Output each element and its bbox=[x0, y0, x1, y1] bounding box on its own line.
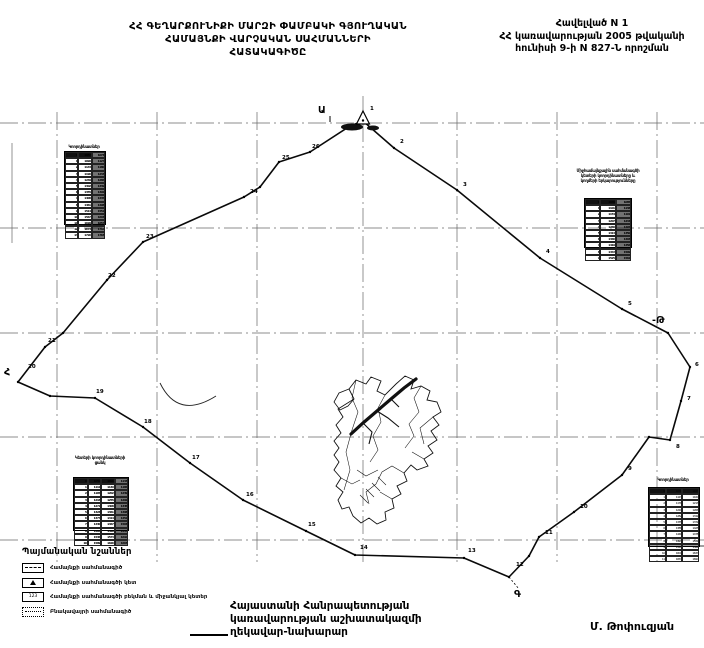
boundary-point bbox=[94, 397, 96, 399]
coordinate-table-upper-left: 0103710741109011272114311803119612334124… bbox=[64, 151, 106, 225]
table-cell: 1653 bbox=[666, 556, 683, 562]
table-row: 10158916261663 bbox=[74, 540, 128, 546]
vertex-number: 3 bbox=[463, 182, 467, 188]
boundary-line-icon bbox=[22, 563, 44, 573]
annex-line3: հունիսի 9-ի N 827-Ն որոշման bbox=[484, 43, 700, 56]
coordinate-table-lower-right: 0107011071112311602117612133122912664128… bbox=[648, 487, 700, 547]
table-cell: 10 bbox=[74, 540, 88, 546]
adjacent-community-letter: Հ bbox=[4, 367, 10, 378]
vertex-number: 23 bbox=[146, 234, 154, 240]
boundary-point bbox=[44, 346, 46, 348]
vertex-number: 8 bbox=[676, 444, 680, 450]
vertex-number: 20 bbox=[28, 364, 36, 370]
boundary-point bbox=[259, 186, 261, 188]
boundary-point bbox=[528, 555, 530, 557]
boundary-point bbox=[573, 511, 575, 513]
vertex-number: 12 bbox=[516, 562, 524, 568]
boundary-point bbox=[142, 241, 144, 243]
boundary-point bbox=[621, 308, 623, 310]
table-cell: 1763 bbox=[92, 232, 105, 238]
triangulation-point-icon bbox=[330, 111, 379, 131]
boundary-point bbox=[680, 400, 682, 402]
vertex-number: 11 bbox=[545, 530, 553, 536]
boundary-point bbox=[648, 436, 650, 438]
boundary-point bbox=[463, 557, 465, 559]
issuing-authority: Հայաստանի Հանրապետության կառավարության ա… bbox=[230, 600, 422, 638]
legend-item-boundary-line: Համայնքի սահմանագիծ bbox=[22, 563, 222, 573]
vertex-number: 7 bbox=[687, 396, 691, 402]
map-title-line2: ՀԱՄԱՅՆՔԻ ՎԱՐՉԱԿԱՆ ՍԱՀՄԱՆՆԵՐԻ bbox=[118, 33, 418, 46]
vertex-number: 18 bbox=[144, 419, 152, 425]
vertex-number: 19 bbox=[96, 389, 104, 395]
boundary-point bbox=[278, 161, 280, 163]
authority-line1: Հայաստանի Հանրապետության bbox=[230, 600, 422, 613]
vertex-number: 22 bbox=[108, 273, 116, 279]
table-cell: 1589 bbox=[88, 540, 102, 546]
boundary-point bbox=[17, 381, 19, 383]
vertex-number: 9 bbox=[628, 466, 632, 472]
table-caption-lower-right: Կոորդինատներ bbox=[646, 477, 700, 482]
boundary-point bbox=[393, 147, 395, 149]
map-title: ՀՀ ԳԵՂԱՐՔՈՒՆԻՔԻ ՄԱՐԶԻ ՓԱՄԲԱԿԻ ԳՅՈՒՂԱԿԱՆ … bbox=[118, 20, 418, 59]
signatory-name: Մ. Թոփուզյան bbox=[590, 620, 674, 633]
point-number-icon: 123 bbox=[22, 592, 44, 602]
map-title-line3: ՀԱՏԱԿԱԳԻԾԸ bbox=[118, 46, 418, 59]
table-cell: 1562 bbox=[616, 255, 631, 261]
vertex-number: 21 bbox=[48, 338, 56, 344]
legend: Պայմանական նշաններ Համայնքի սահմանագիծ Հ… bbox=[22, 547, 222, 621]
vertex-number: 26 bbox=[312, 144, 320, 150]
table-cell: 11 bbox=[649, 556, 666, 562]
table-caption-lower-left: Կետերի կոորդինատներիցանկ bbox=[62, 455, 138, 465]
adjacent-community-letter: -Թ bbox=[652, 315, 665, 326]
adjacent-community-letter: Ա bbox=[318, 105, 326, 116]
authority-line2: կառավարության աշխատակազմի bbox=[230, 613, 422, 626]
vertex-number: 4 bbox=[546, 249, 550, 255]
boundary-point bbox=[669, 439, 671, 441]
coordinate-table-upper-right: 0104810851110111382115411913120712444126… bbox=[584, 198, 632, 248]
vertex-number: 6 bbox=[695, 362, 699, 368]
coordinate-table-lower-left: 0105910961133111121149118621165120212393… bbox=[73, 477, 129, 531]
vertex-number: 2 bbox=[400, 139, 404, 145]
table-row: 1317261763 bbox=[65, 232, 105, 238]
annex-line1: Հավելված N 1 bbox=[484, 18, 700, 31]
adjacent-community-letter: Գ bbox=[514, 589, 521, 600]
legend-item-settlement-boundary: Բնակավայրի սահմանագիծ bbox=[22, 607, 222, 617]
boundary-point bbox=[243, 196, 245, 198]
boundary-point bbox=[621, 474, 623, 476]
table-cell: 1663 bbox=[115, 540, 129, 546]
table-row: 915251562 bbox=[585, 255, 631, 261]
boundary-point bbox=[106, 279, 108, 281]
boundary-point bbox=[539, 257, 541, 259]
boundary-point bbox=[49, 395, 51, 397]
boundary-point bbox=[456, 189, 458, 191]
annex-reference: Հավելված N 1 ՀՀ կառավարության 2005 թվակա… bbox=[484, 18, 700, 56]
table-cell: 1726 bbox=[78, 232, 91, 238]
boundary-point-icon bbox=[22, 578, 44, 588]
vertex-number: 17 bbox=[192, 455, 200, 461]
vertex-number: 1 bbox=[370, 106, 374, 112]
vertex-number: 13 bbox=[468, 548, 476, 554]
table-row: 1116531690 bbox=[649, 556, 699, 562]
boundary-point bbox=[305, 530, 307, 532]
table-cell: 9 bbox=[585, 255, 600, 261]
vertex-number: 10 bbox=[580, 504, 588, 510]
boundary-point bbox=[689, 366, 691, 368]
boundary-point bbox=[538, 536, 540, 538]
boundary-point bbox=[354, 554, 356, 556]
boundary-point bbox=[309, 151, 311, 153]
table-cell: 13 bbox=[65, 232, 78, 238]
vertex-number: 5 bbox=[628, 301, 632, 307]
map-title-line1: ՀՀ ԳԵՂԱՐՔՈՒՆԻՔԻ ՄԱՐԶԻ ՓԱՄԲԱԿԻ ԳՅՈՒՂԱԿԱՆ bbox=[118, 20, 418, 33]
vertex-number: 15 bbox=[308, 522, 316, 528]
legend-item-point-number: 123 Համայնքի սահմանագծի բեկման և միջանկյ… bbox=[22, 592, 222, 602]
signature-rule bbox=[190, 634, 228, 636]
legend-title: Պայմանական նշաններ bbox=[22, 547, 222, 557]
boundary-point bbox=[667, 332, 669, 334]
boundary-point bbox=[62, 332, 64, 334]
settlement-boundary-icon bbox=[22, 607, 44, 617]
legend-item-boundary-point: Համայնքի սահմանագծի կետ bbox=[22, 578, 222, 588]
table-caption-upper-left: Կոորդինատներ bbox=[48, 144, 120, 149]
vertex-number: 24 bbox=[250, 189, 258, 195]
map-sheet: 1234567891011121314151617181920212223242… bbox=[0, 0, 704, 648]
terrain-arc bbox=[160, 383, 216, 405]
table-cell: 1690 bbox=[682, 556, 699, 562]
table-cell: 1525 bbox=[600, 255, 615, 261]
vertex-number: 16 bbox=[246, 492, 254, 498]
vertex-number: 25 bbox=[282, 155, 290, 161]
leader-line bbox=[509, 577, 519, 589]
table-caption-upper-right: Միջհամայնքային սահմանագծիկետերի կոորդինա… bbox=[556, 168, 660, 183]
settlement-area bbox=[334, 376, 441, 524]
boundary-point bbox=[142, 426, 144, 428]
vertex-number: 14 bbox=[360, 545, 368, 551]
authority-line3: ղեկավար-նախարար bbox=[230, 626, 422, 639]
table-cell: 1626 bbox=[101, 540, 115, 546]
boundary-point bbox=[189, 462, 191, 464]
boundary-point bbox=[242, 499, 244, 501]
annex-line2: ՀՀ կառավարության 2005 թվականի bbox=[484, 31, 700, 44]
